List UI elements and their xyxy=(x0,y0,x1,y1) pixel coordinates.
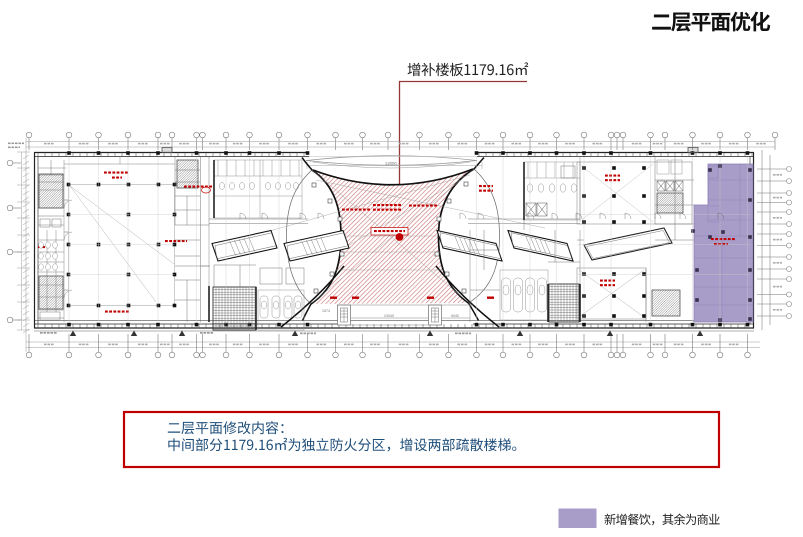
svg-text:1574: 1574 xyxy=(322,309,330,313)
svg-text:12000: 12000 xyxy=(385,161,397,166)
svg-text:5040: 5040 xyxy=(451,314,459,318)
svg-text:23040: 23040 xyxy=(384,314,394,318)
